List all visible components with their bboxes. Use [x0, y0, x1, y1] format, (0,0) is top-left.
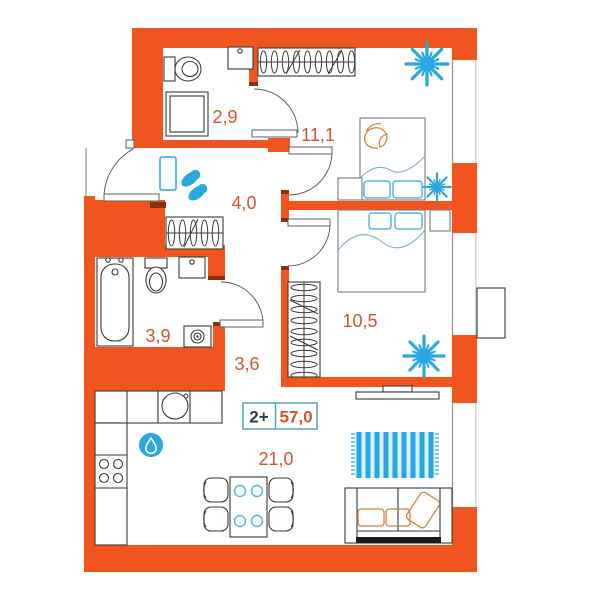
toilet-icon [164, 57, 175, 81]
wardrobe-icon [166, 217, 223, 249]
jamb-cap [281, 190, 289, 194]
kitchen-counter [95, 423, 127, 545]
room-hallway [160, 157, 223, 249]
jamb-cap [249, 82, 258, 86]
floor-plan-canvas: 2,9 11,1 4,0 3,9 3,6 10,5 21,0 2+ 57,0 [0, 0, 600, 600]
pillow [395, 213, 422, 229]
plant-icon [404, 336, 444, 376]
floor-plan: 2,9 11,1 4,0 3,9 3,6 10,5 21,0 2+ 57,0 [0, 0, 600, 600]
pillow [393, 181, 422, 198]
nightstand [430, 210, 450, 231]
shower-icon [166, 92, 208, 136]
bathtub-faucet [106, 258, 110, 262]
bedroom2-door-leaf [288, 219, 330, 226]
door-arc [288, 224, 330, 266]
mirror-icon [160, 157, 176, 190]
door-arc [289, 152, 332, 195]
rug-icon [351, 432, 439, 478]
jamb-cap [208, 276, 225, 280]
plate [252, 486, 263, 497]
room-label-bedroom-1: 11,1 [301, 125, 335, 145]
wall-bottom [84, 545, 477, 572]
jamb-cap [281, 266, 289, 270]
washing-machine-icon [196, 335, 198, 337]
wall-bedroom2-bottom [281, 377, 453, 387]
room-label-living-kitchen: 21,0 [258, 449, 293, 469]
pillow [364, 181, 390, 198]
plate [252, 516, 263, 527]
sofa-icon [345, 488, 452, 543]
room-wc [164, 47, 253, 136]
bathroom-door-leaf [220, 320, 263, 327]
door-arc [104, 149, 133, 197]
door-arc [221, 282, 263, 324]
plant-icon [406, 43, 448, 85]
entry-door-jamb [126, 140, 134, 148]
bathtub-faucet [119, 258, 123, 262]
total-area-label: 57,0 [279, 408, 312, 427]
wall-wc-bottom [132, 140, 272, 148]
toilet-icon [175, 57, 201, 81]
plate [235, 486, 246, 497]
unit-type-label: 2+ [249, 408, 268, 427]
wc-door-leaf [252, 130, 297, 137]
toilet-icon [146, 267, 166, 293]
dining-set [204, 477, 294, 537]
pillow [369, 213, 391, 229]
sink-faucet [190, 260, 194, 264]
room-label-wc: 2,9 [212, 107, 237, 127]
ac-unit-icon [477, 288, 505, 338]
wall-top-right-corner [452, 28, 477, 60]
tv-icon [356, 392, 439, 399]
wardrobe-icon [288, 282, 320, 377]
wall-bedrooms-divider [281, 201, 453, 210]
kitchen-sink-faucet [184, 394, 188, 398]
dining-table-icon [230, 477, 267, 537]
room-label-bedroom-2: 10,5 [342, 311, 377, 331]
chair-icon [204, 478, 228, 502]
entry-door-leaf [104, 194, 159, 201]
wall-bathroom-right-upper [208, 245, 225, 280]
door-arc [254, 89, 298, 133]
chair-icon [269, 478, 293, 502]
jamb-cap [150, 202, 166, 208]
sofa-base [356, 537, 441, 543]
chair-icon [204, 507, 228, 531]
wall-wc-left [132, 28, 163, 148]
plate [235, 516, 246, 527]
room-bedroom-1 [258, 43, 451, 201]
bedroom1-door-leaf [289, 147, 332, 154]
area-badge: 2+ 57,0 [243, 403, 317, 429]
room-label-hallway: 4,0 [231, 193, 256, 213]
room-label-corridor: 3,6 [234, 354, 259, 374]
wall-right-seg1 [452, 163, 477, 233]
plant-icon [423, 173, 450, 200]
room-bedroom-2 [288, 210, 450, 377]
tv-icon [383, 386, 412, 392]
chair-icon [269, 507, 293, 531]
sink-faucet [238, 49, 242, 53]
wall-kitchen-band [84, 347, 224, 391]
wall-right-seg2 [452, 335, 477, 403]
nightstand [338, 178, 362, 200]
wall-top [132, 28, 477, 48]
wall-corner-block [268, 138, 290, 152]
room-label-bathroom: 3,9 [145, 326, 170, 346]
